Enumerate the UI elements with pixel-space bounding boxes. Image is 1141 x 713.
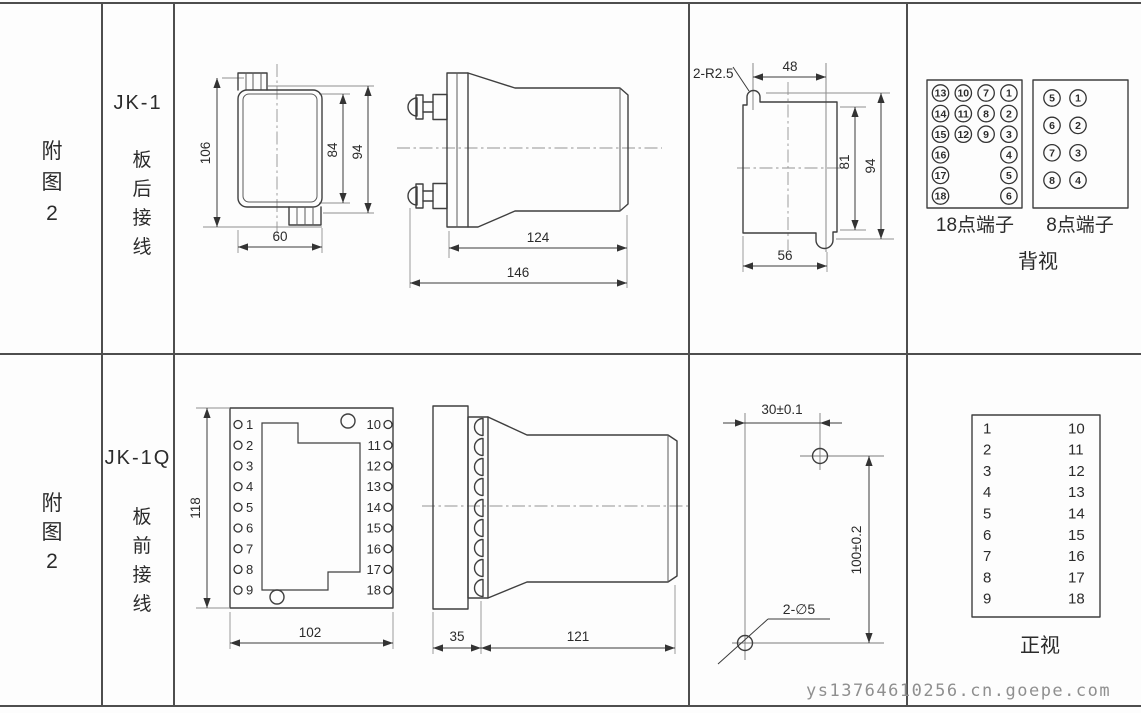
front-terminals-right: 101112131415161718 xyxy=(367,417,392,598)
wiring-char: 板 xyxy=(120,146,164,175)
dim-81: 81 xyxy=(837,154,852,169)
model-label-jk1q: JK-1Q xyxy=(100,447,176,470)
mounting-hole-drawing: 30±0.1 100±0.2 2-∅5 xyxy=(700,395,905,670)
svg-text:5: 5 xyxy=(1049,93,1055,105)
dim-35: 35 xyxy=(449,629,464,644)
mounting-hole-top xyxy=(341,414,355,428)
dimension-lines xyxy=(733,67,881,266)
figure-label-row1: 附 图 2 xyxy=(28,136,76,229)
dim-102: 102 xyxy=(299,625,322,640)
svg-text:10: 10 xyxy=(367,417,381,432)
figure-char: 2 xyxy=(28,547,76,576)
svg-text:3: 3 xyxy=(1006,129,1012,141)
relay-side-outline xyxy=(447,73,628,227)
figure-char: 2 xyxy=(28,198,76,229)
svg-text:18: 18 xyxy=(1068,591,1085,608)
svg-text:14: 14 xyxy=(1068,505,1085,522)
svg-text:5: 5 xyxy=(246,500,253,515)
svg-text:5: 5 xyxy=(1006,170,1012,182)
table-row-divider xyxy=(0,353,1141,355)
svg-text:6: 6 xyxy=(983,527,991,544)
drawing-sheet: 附 图 2 JK-1 板 后 接 线 附 图 2 JK-1Q 板 前 接 线 xyxy=(0,0,1141,713)
wiring-char: 接 xyxy=(120,204,164,233)
svg-text:13: 13 xyxy=(935,88,947,100)
table-border-top xyxy=(0,2,1141,4)
svg-text:6: 6 xyxy=(246,521,253,536)
note-2-dia5: 2-∅5 xyxy=(783,601,816,617)
jk1q-side-outline xyxy=(433,406,677,609)
figure-char: 附 xyxy=(28,136,76,167)
svg-text:15: 15 xyxy=(1068,527,1085,544)
svg-text:2: 2 xyxy=(1006,108,1012,120)
wiring-char: 接 xyxy=(120,561,164,590)
figure-label-row2: 附 图 2 xyxy=(28,489,76,576)
terminal-grid-18: 131071141182151293164175186 xyxy=(932,85,1017,204)
svg-text:11: 11 xyxy=(1068,442,1084,459)
svg-text:18: 18 xyxy=(935,191,947,203)
extension-lines xyxy=(196,408,393,649)
dim-48: 48 xyxy=(782,59,797,74)
dim-94-cutout: 94 xyxy=(863,158,878,174)
svg-text:7: 7 xyxy=(983,88,989,100)
svg-text:2: 2 xyxy=(246,438,253,453)
figure-char: 图 xyxy=(28,518,76,547)
svg-text:2: 2 xyxy=(1075,120,1081,132)
centerlines xyxy=(737,63,845,252)
svg-text:7: 7 xyxy=(246,541,253,556)
wiring-char: 线 xyxy=(120,233,164,262)
jk1-front-view-drawing: 106 84 94 60 xyxy=(195,55,395,305)
rear-terminal-diagram: 131071141182151293164175186 51627384 18点… xyxy=(910,70,1141,280)
figure-char: 附 xyxy=(28,489,76,518)
table-border-bottom xyxy=(0,705,1141,707)
dim-100: 100±0.2 xyxy=(849,526,864,575)
extension-lines xyxy=(433,585,675,654)
wiring-char: 板 xyxy=(120,503,164,532)
svg-text:8: 8 xyxy=(983,569,991,586)
wiring-label-row2: 板 前 接 线 xyxy=(120,503,164,619)
svg-text:16: 16 xyxy=(1068,548,1085,565)
jk1q-front-view-drawing: 123456789 101112131415161718 118 102 xyxy=(190,395,410,660)
svg-text:13: 13 xyxy=(1068,484,1085,501)
dim-121: 121 xyxy=(567,629,590,644)
svg-text:9: 9 xyxy=(983,591,991,608)
dim-106: 106 xyxy=(198,142,213,165)
svg-text:15: 15 xyxy=(367,521,381,536)
svg-text:16: 16 xyxy=(935,149,947,161)
svg-text:17: 17 xyxy=(935,170,947,182)
table-col-line-4 xyxy=(906,2,908,705)
dim-60: 60 xyxy=(272,229,287,244)
svg-text:17: 17 xyxy=(367,562,381,577)
label-front-view: 正视 xyxy=(1020,634,1060,657)
watermark-text: ys13764610256.cn.goepe.com xyxy=(806,681,1111,701)
svg-text:10: 10 xyxy=(1068,420,1085,437)
svg-text:4: 4 xyxy=(246,479,253,494)
dim-118: 118 xyxy=(188,497,203,519)
svg-text:5: 5 xyxy=(983,505,991,522)
figure-char: 图 xyxy=(28,167,76,198)
svg-text:7: 7 xyxy=(983,548,991,565)
svg-text:8: 8 xyxy=(246,562,253,577)
svg-text:17: 17 xyxy=(1068,569,1085,586)
jk1q-side-view-drawing: 35 121 xyxy=(420,395,690,660)
svg-text:6: 6 xyxy=(1006,191,1012,203)
label-back-view: 背视 xyxy=(1018,250,1058,273)
wiring-label-row1: 板 后 接 线 xyxy=(120,146,164,262)
dim-30: 30±0.1 xyxy=(761,402,802,417)
note-2-R2.5: 2-R2.5 xyxy=(693,66,734,81)
mounting-hole-bottom xyxy=(270,590,284,604)
wiring-char: 后 xyxy=(120,175,164,204)
svg-text:16: 16 xyxy=(367,541,381,556)
terminal-map-right: 101112131415161718 xyxy=(1068,420,1085,607)
label-8-point-terminal: 8点端子 xyxy=(1046,214,1114,236)
svg-text:1: 1 xyxy=(1075,93,1081,105)
svg-text:10: 10 xyxy=(957,88,969,100)
svg-text:6: 6 xyxy=(1049,120,1055,132)
svg-text:3: 3 xyxy=(246,458,253,473)
wiring-char: 前 xyxy=(120,532,164,561)
terminal-grid-8: 51627384 xyxy=(1044,90,1086,189)
mounting-screw-bottom xyxy=(408,184,447,209)
svg-text:7: 7 xyxy=(1049,147,1055,159)
svg-text:12: 12 xyxy=(957,129,969,141)
svg-text:9: 9 xyxy=(983,129,989,141)
terminal-screws-column xyxy=(475,419,484,597)
svg-text:8: 8 xyxy=(1049,175,1055,187)
dim-56: 56 xyxy=(777,248,792,263)
dimension-lines xyxy=(718,423,869,664)
wiring-char: 线 xyxy=(120,590,164,619)
svg-text:11: 11 xyxy=(368,438,382,453)
cutout-outline xyxy=(743,91,837,249)
dim-124: 124 xyxy=(527,230,550,245)
svg-text:14: 14 xyxy=(935,108,947,120)
svg-text:3: 3 xyxy=(983,463,991,480)
svg-text:1: 1 xyxy=(983,420,991,437)
front-terminal-map: 123456789 101112131415161718 正视 xyxy=(940,400,1140,660)
svg-text:15: 15 xyxy=(935,129,947,141)
svg-text:3: 3 xyxy=(1075,147,1081,159)
dimension-lines xyxy=(217,78,368,247)
svg-text:1: 1 xyxy=(1006,88,1012,100)
svg-text:4: 4 xyxy=(1006,149,1012,161)
dim-94: 94 xyxy=(350,144,365,160)
front-terminals-left: 123456789 xyxy=(234,417,253,598)
dim-84: 84 xyxy=(325,142,340,158)
svg-text:13: 13 xyxy=(367,479,381,494)
svg-text:4: 4 xyxy=(983,484,991,501)
mounting-screw-top xyxy=(408,95,447,120)
svg-text:1: 1 xyxy=(246,417,253,432)
svg-text:4: 4 xyxy=(1075,175,1081,187)
terminal-map-left: 123456789 xyxy=(983,420,991,607)
jk1-side-view-drawing: 124 146 xyxy=(395,55,695,305)
svg-text:18: 18 xyxy=(367,583,381,598)
model-label-jk1: JK-1 xyxy=(100,92,176,115)
inner-stepped-outline xyxy=(262,423,360,590)
relay-front-outline xyxy=(238,73,322,225)
label-18-point-terminal: 18点端子 xyxy=(936,214,1014,236)
dim-146: 146 xyxy=(507,265,530,280)
svg-text:14: 14 xyxy=(367,500,381,515)
svg-text:12: 12 xyxy=(1068,463,1085,480)
svg-text:8: 8 xyxy=(983,108,989,120)
svg-text:12: 12 xyxy=(367,458,381,473)
svg-text:2: 2 xyxy=(983,442,991,459)
extension-lines xyxy=(203,78,374,253)
svg-text:9: 9 xyxy=(246,583,253,598)
svg-text:11: 11 xyxy=(958,108,969,120)
jk1-panel-cutout-drawing: 2-R2.5 48 81 94 56 xyxy=(688,55,905,305)
